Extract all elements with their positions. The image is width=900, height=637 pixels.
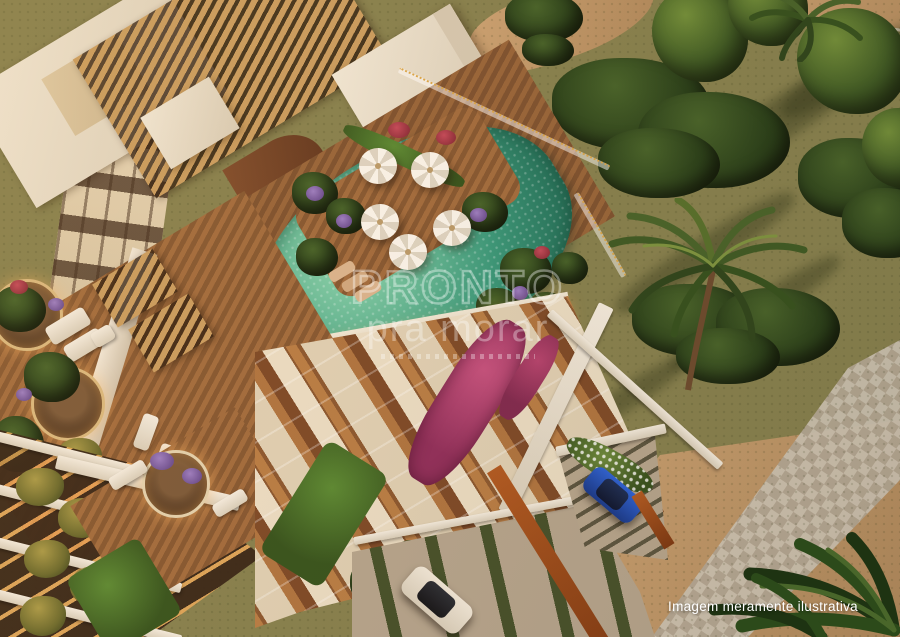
purple-flowers xyxy=(16,388,32,401)
red-flowers xyxy=(388,122,410,138)
palm-fronds-foreground xyxy=(642,498,900,637)
watermark: PRONTO pra morar xyxy=(343,264,573,359)
purple-flowers xyxy=(182,468,202,484)
red-flowers xyxy=(534,246,550,259)
purple-flowers xyxy=(336,214,352,228)
purple-flowers xyxy=(470,208,487,222)
caption-text: Imagem meramente ilustrativa xyxy=(668,599,858,614)
shrub-cluster xyxy=(598,128,720,198)
purple-flowers xyxy=(150,452,174,470)
umbrella xyxy=(361,204,399,240)
umbrella xyxy=(411,152,449,188)
purple-flowers xyxy=(306,186,324,201)
shrub-cluster xyxy=(522,34,574,66)
watermark-subtitle: pra morar xyxy=(343,310,573,350)
watermark-title: PRONTO xyxy=(343,264,573,310)
umbrella xyxy=(359,148,397,184)
red-flowers xyxy=(436,130,456,145)
render-canvas: PRONTO pra morar Imagem meramente ilustr… xyxy=(0,0,900,637)
purple-flowers xyxy=(48,298,64,311)
umbrella xyxy=(433,210,471,246)
red-flowers xyxy=(10,280,28,294)
terrace-plant xyxy=(24,352,80,402)
palm-tree xyxy=(600,198,820,408)
watermark-tagline-row xyxy=(381,354,535,359)
palm-tree-small xyxy=(748,0,868,62)
